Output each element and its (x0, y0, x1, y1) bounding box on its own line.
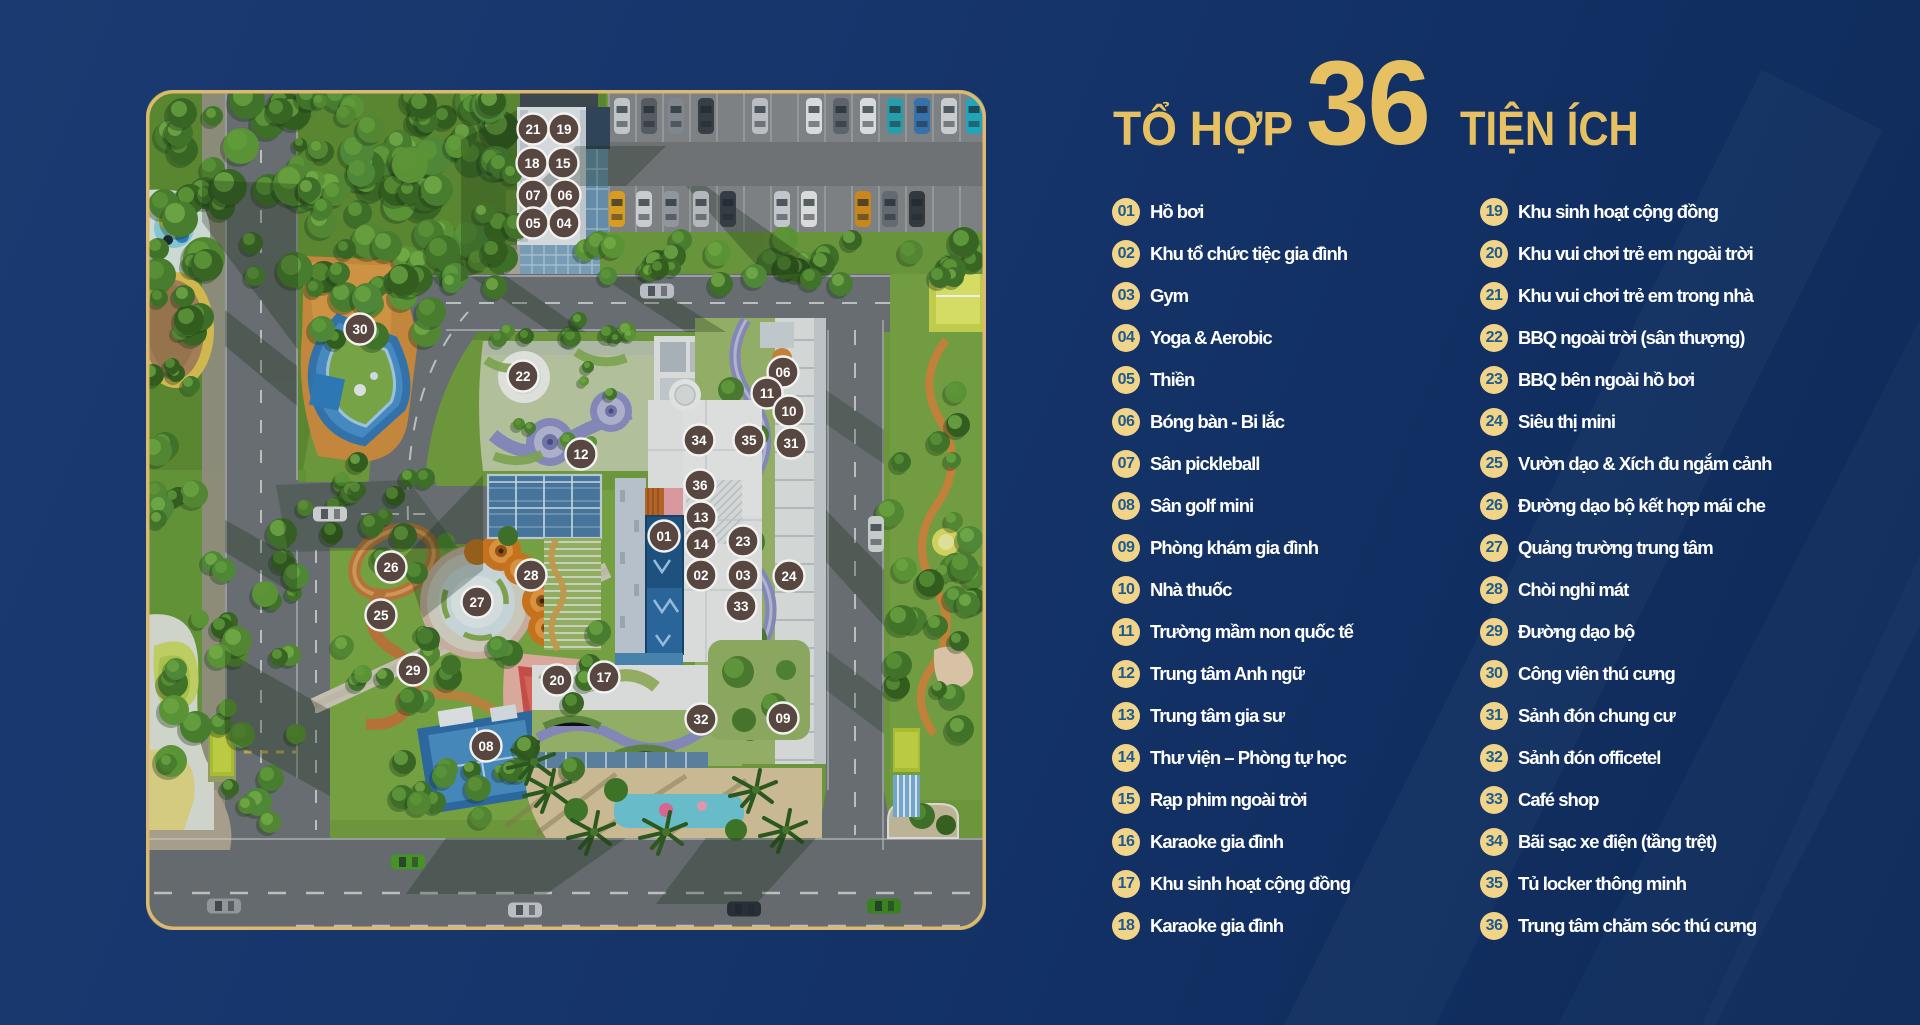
svg-text:29: 29 (405, 663, 420, 678)
svg-text:28: 28 (523, 568, 539, 583)
svg-text:33: 33 (733, 599, 749, 614)
svg-text:01: 01 (656, 529, 672, 544)
svg-text:19: 19 (556, 122, 571, 137)
svg-text:36: 36 (692, 478, 708, 493)
svg-text:32: 32 (693, 712, 708, 727)
svg-text:11: 11 (760, 386, 775, 401)
svg-text:30: 30 (352, 322, 367, 337)
svg-text:06: 06 (775, 365, 791, 380)
svg-text:31: 31 (783, 436, 799, 451)
svg-text:08: 08 (478, 739, 494, 754)
svg-text:06: 06 (557, 188, 573, 203)
svg-text:34: 34 (691, 433, 707, 448)
svg-text:22: 22 (515, 369, 530, 384)
svg-text:35: 35 (741, 433, 757, 448)
svg-text:15: 15 (555, 156, 571, 171)
svg-text:14: 14 (693, 537, 709, 552)
svg-text:26: 26 (383, 560, 399, 575)
svg-text:18: 18 (524, 156, 540, 171)
svg-text:04: 04 (556, 216, 572, 231)
svg-text:25: 25 (373, 608, 389, 623)
svg-text:27: 27 (469, 595, 484, 610)
svg-text:23: 23 (735, 534, 751, 549)
svg-text:20: 20 (549, 673, 564, 688)
svg-text:10: 10 (781, 404, 796, 419)
svg-text:12: 12 (573, 447, 588, 462)
svg-text:24: 24 (781, 569, 797, 584)
svg-text:05: 05 (525, 216, 541, 231)
svg-text:07: 07 (525, 188, 540, 203)
svg-text:02: 02 (693, 568, 708, 583)
svg-text:13: 13 (693, 510, 709, 525)
svg-text:17: 17 (596, 670, 611, 685)
svg-text:21: 21 (525, 122, 541, 137)
svg-text:09: 09 (775, 711, 790, 726)
svg-text:03: 03 (735, 568, 751, 583)
